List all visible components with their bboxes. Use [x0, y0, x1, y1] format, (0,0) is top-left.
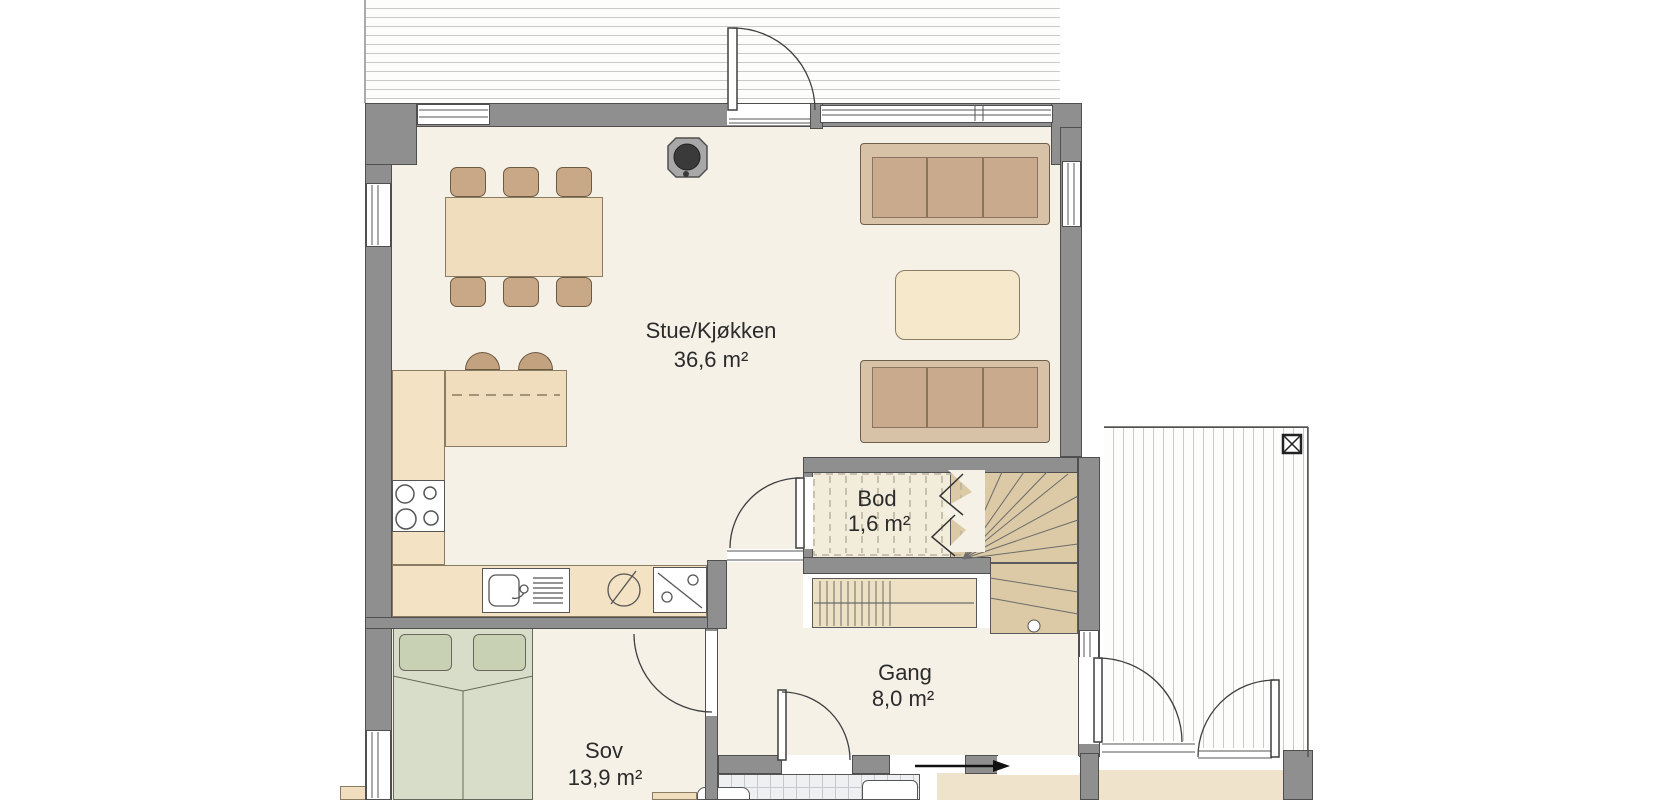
- wall-stair-top: [803, 457, 1078, 473]
- window-top-left: [417, 104, 490, 125]
- deck-right: [1104, 427, 1308, 757]
- entrance-opening: [890, 756, 965, 773]
- stair-winder: [950, 472, 1078, 563]
- door-opening-bod: [804, 477, 813, 549]
- room-area-gang: 8,0 m²: [872, 688, 934, 710]
- dishwasher: [653, 567, 707, 613]
- kitchen-counter-left: [392, 370, 445, 565]
- sill-deck-b: [1198, 748, 1274, 761]
- dining-chair: [450, 277, 486, 307]
- wall-gang-bottom-1: [718, 755, 782, 774]
- dining-chair: [556, 277, 592, 307]
- kitchen-sink-unit: [482, 568, 570, 613]
- dining-chair: [503, 167, 539, 197]
- room-label-sov: Sov: [585, 740, 623, 762]
- wall-gang-bottom-2: [852, 755, 890, 774]
- stair-landing: [990, 563, 1078, 634]
- bathroom-fixture: [862, 780, 918, 800]
- room-area-sov: 13,9 m²: [568, 767, 643, 789]
- window-top-right-band: [820, 105, 1053, 123]
- wall-kitchen-bedroom: [365, 617, 727, 629]
- room-label-stue: Stue/Kjøkken: [646, 320, 777, 342]
- nightstand: [652, 792, 697, 800]
- coffee-table: [895, 270, 1020, 340]
- window-left-bedroom: [366, 730, 391, 800]
- bed-pillow: [473, 634, 526, 671]
- wall-corner-bottom-right: [1283, 750, 1313, 800]
- stair-lower-flight: [812, 578, 977, 628]
- sofa-bottom-cushions: [872, 367, 1038, 428]
- floor-entry: [937, 773, 1080, 800]
- room-area-stue: 36,6 m²: [674, 349, 749, 371]
- bed-pillow: [399, 634, 452, 671]
- floor-plan: Stue/Kjøkken 36,6 m² Bod 1,6 m² Gang 8,0…: [0, 0, 1670, 800]
- wall-gang-bottom-3: [965, 755, 998, 774]
- wall-corner-top-left: [365, 103, 417, 165]
- room-label-gang: Gang: [878, 662, 932, 684]
- door-opening-top-deck: [727, 104, 813, 125]
- dining-chair: [450, 167, 486, 197]
- wall-entry-left: [1080, 753, 1099, 800]
- sill-deck-a: [1102, 741, 1195, 755]
- bod-low-wall: [727, 549, 803, 562]
- dining-table: [445, 197, 603, 277]
- window-right-upper: [1062, 161, 1081, 227]
- deck-top: [365, 0, 1060, 103]
- floor-passage: [727, 457, 803, 628]
- wall-kitchen-end-block: [707, 560, 727, 629]
- dining-chair: [556, 167, 592, 197]
- room-label-bod: Bod: [857, 488, 896, 510]
- cooktop: [392, 480, 445, 532]
- floor-bottom-right: [1098, 770, 1283, 800]
- window-left-upper: [366, 183, 391, 247]
- wall-under-bod: [803, 557, 991, 574]
- entry-vestibule-opening: [997, 756, 1079, 775]
- sofa-top-cushions: [872, 157, 1038, 218]
- door-opening-gang-deck: [1079, 657, 1099, 744]
- kitchen-island: [445, 370, 567, 447]
- door-opening-bedroom: [706, 631, 717, 716]
- window-gang-sidelight: [1079, 630, 1099, 659]
- dining-chair: [503, 277, 539, 307]
- door-opening-bathroom: [782, 756, 852, 773]
- room-area-bod: 1,6 m²: [848, 513, 910, 535]
